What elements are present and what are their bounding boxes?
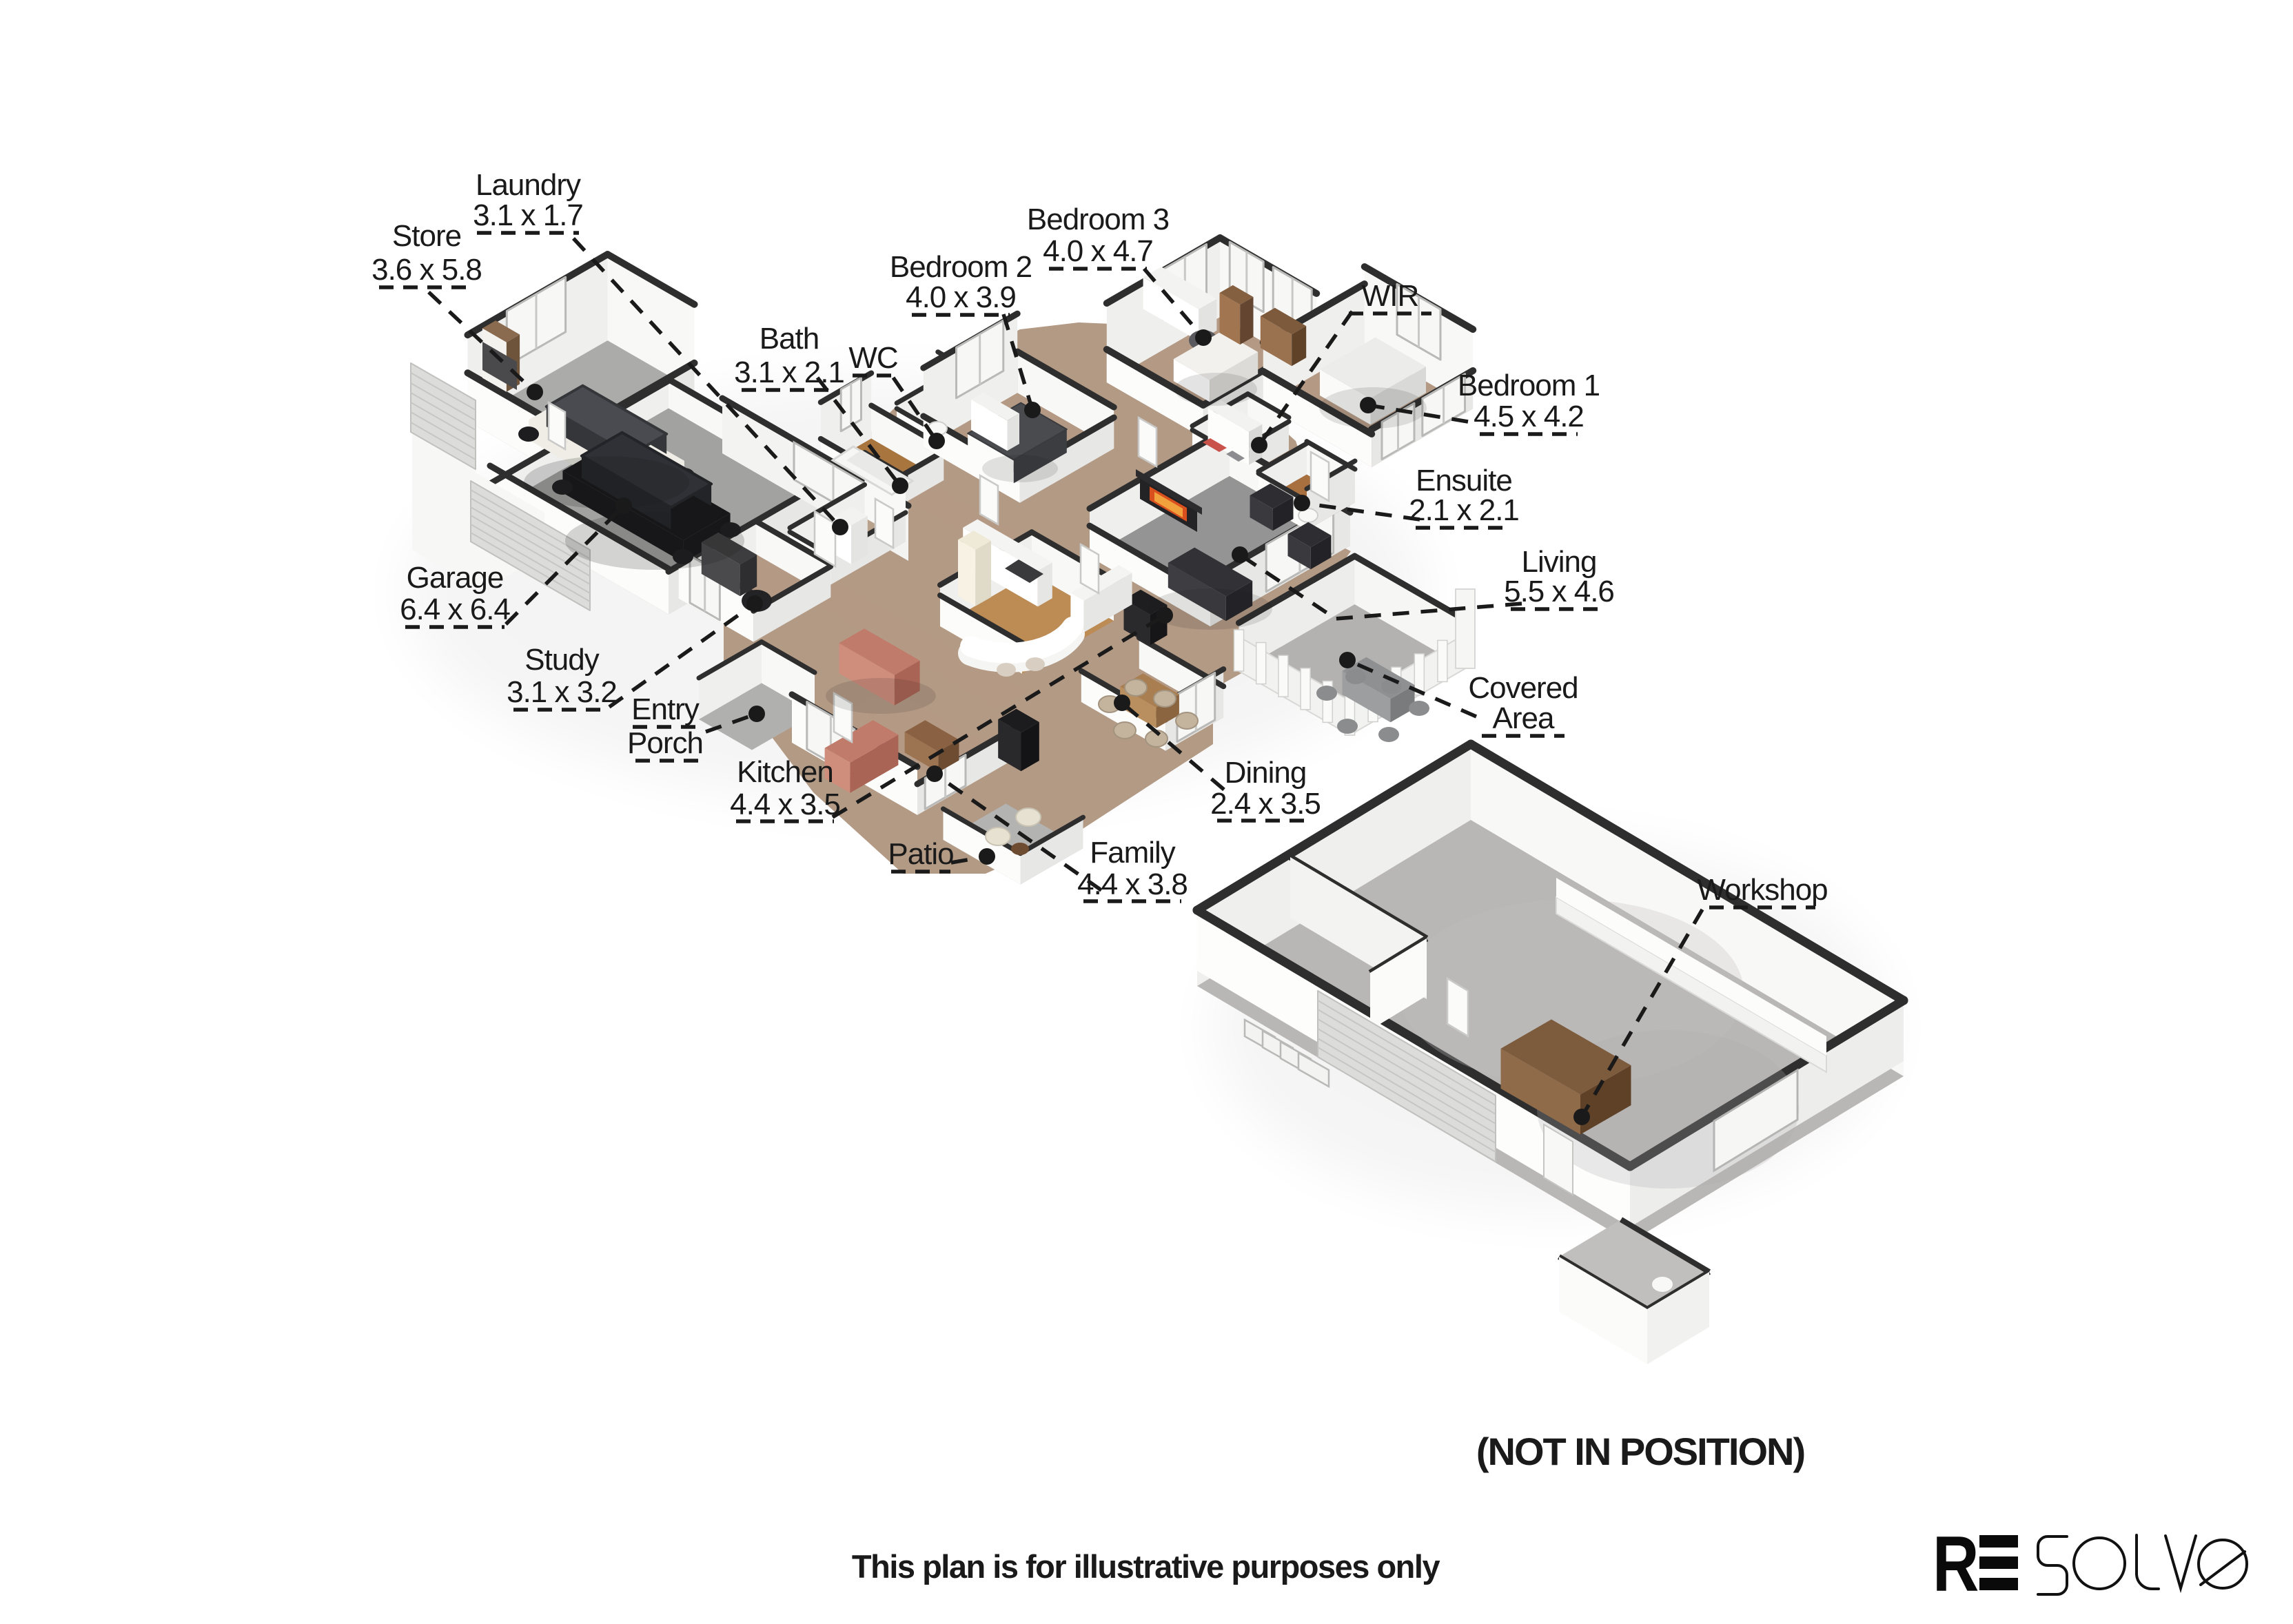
svg-text:R: R (1933, 1521, 1979, 1608)
svg-text:4.0 x 4.7: 4.0 x 4.7 (1043, 234, 1153, 268)
svg-text:2.1 x 2.1: 2.1 x 2.1 (1409, 493, 1519, 527)
svg-text:Bath: Bath (760, 322, 819, 356)
svg-text:4.5 x 4.2: 4.5 x 4.2 (1474, 400, 1584, 433)
svg-text:3.6 x 5.8: 3.6 x 5.8 (371, 253, 482, 287)
svg-text:3.1 x 2.1: 3.1 x 2.1 (734, 356, 844, 389)
svg-text:(NOT IN POSITION): (NOT IN POSITION) (1476, 1430, 1804, 1473)
svg-text:This plan is for illustrative: This plan is for illustrative purposes o… (852, 1548, 1440, 1585)
svg-text:WC: WC (848, 341, 898, 375)
svg-text:Store: Store (392, 219, 461, 253)
svg-text:Workshop: Workshop (1697, 873, 1827, 907)
svg-text:Study: Study (524, 643, 600, 677)
svg-text:Entry: Entry (631, 692, 700, 726)
svg-text:3.1 x 3.2: 3.1 x 3.2 (507, 675, 617, 709)
svg-text:Area: Area (1493, 701, 1555, 735)
svg-text:Garage: Garage (407, 561, 504, 595)
svg-text:Kitchen: Kitchen (737, 755, 833, 789)
svg-text:Living: Living (1522, 545, 1597, 579)
svg-text:Patio: Patio (888, 837, 953, 871)
svg-text:WIR: WIR (1362, 279, 1419, 313)
svg-text:Bedroom 1: Bedroom 1 (1458, 369, 1600, 402)
svg-text:Dining: Dining (1225, 756, 1307, 790)
svg-text:Porch: Porch (627, 726, 703, 760)
svg-text:Bedroom 3: Bedroom 3 (1027, 203, 1169, 236)
svg-text:2.4 x 3.5: 2.4 x 3.5 (1210, 787, 1321, 821)
svg-text:Laundry: Laundry (476, 168, 581, 202)
svg-text:4.4 x 3.8: 4.4 x 3.8 (1077, 867, 1188, 901)
svg-text:Covered: Covered (1468, 671, 1578, 705)
svg-text:Bedroom 2: Bedroom 2 (890, 250, 1032, 284)
svg-text:3.1 x 1.7: 3.1 x 1.7 (473, 198, 583, 232)
svg-text:4.4 x 3.5: 4.4 x 3.5 (730, 788, 840, 821)
svg-text:Ensuite: Ensuite (1416, 464, 1512, 497)
svg-text:6.4 x 6.4: 6.4 x 6.4 (400, 593, 510, 626)
svg-text:4.0 x 3.9: 4.0 x 3.9 (906, 280, 1016, 314)
svg-text:5.5 x 4.6: 5.5 x 4.6 (1504, 575, 1614, 608)
svg-text:Family: Family (1090, 836, 1176, 870)
